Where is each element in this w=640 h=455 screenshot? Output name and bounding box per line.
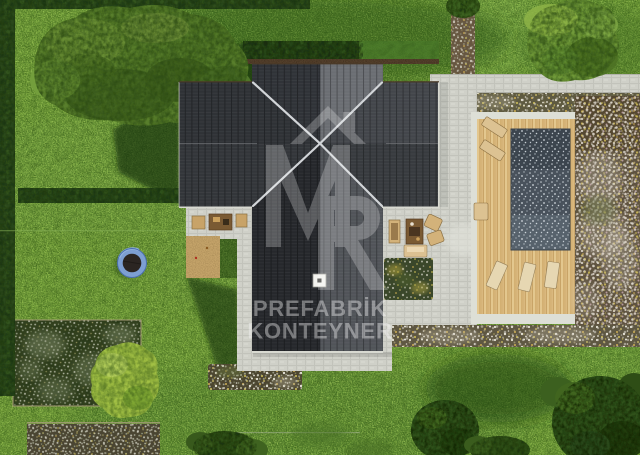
svg-text:KONTEYNER: KONTEYNER	[247, 319, 392, 344]
svg-text:PREFABRİK: PREFABRİK	[253, 296, 387, 321]
